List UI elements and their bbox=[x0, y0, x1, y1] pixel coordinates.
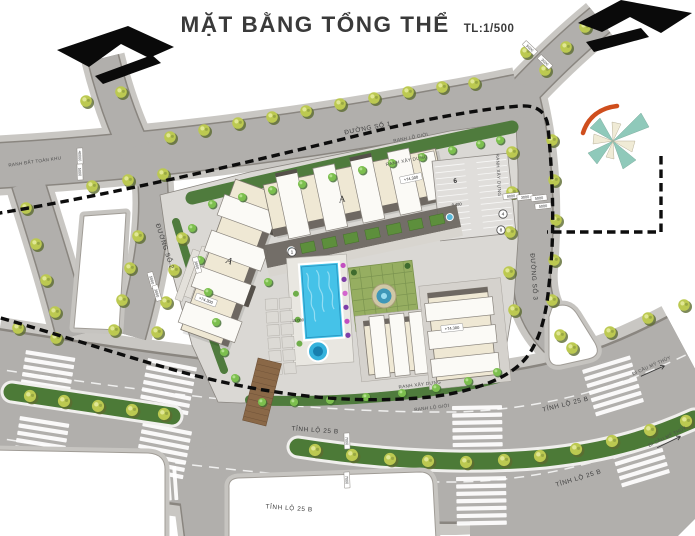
marker-4: 4 bbox=[502, 212, 505, 218]
site-plan-drawing: A A +74.300 bbox=[0, 0, 695, 536]
svg-text:7000: 7000 bbox=[344, 437, 348, 446]
marker-8: 8 bbox=[500, 228, 503, 234]
svg-text:5000: 5000 bbox=[77, 168, 81, 177]
master-plan-sheet: MẶT BẰNG TỔNG THỂ TL:1/500 bbox=[0, 0, 695, 536]
wind-rose bbox=[583, 106, 649, 169]
svg-text:7000: 7000 bbox=[344, 476, 348, 485]
road-arrow-northeast bbox=[578, 0, 692, 52]
marker-1: 1 bbox=[291, 250, 294, 256]
svg-text:40000: 40000 bbox=[77, 151, 81, 162]
pool-area: +15.000 bbox=[285, 254, 354, 366]
secondary-boundary-dashed bbox=[547, 156, 661, 232]
